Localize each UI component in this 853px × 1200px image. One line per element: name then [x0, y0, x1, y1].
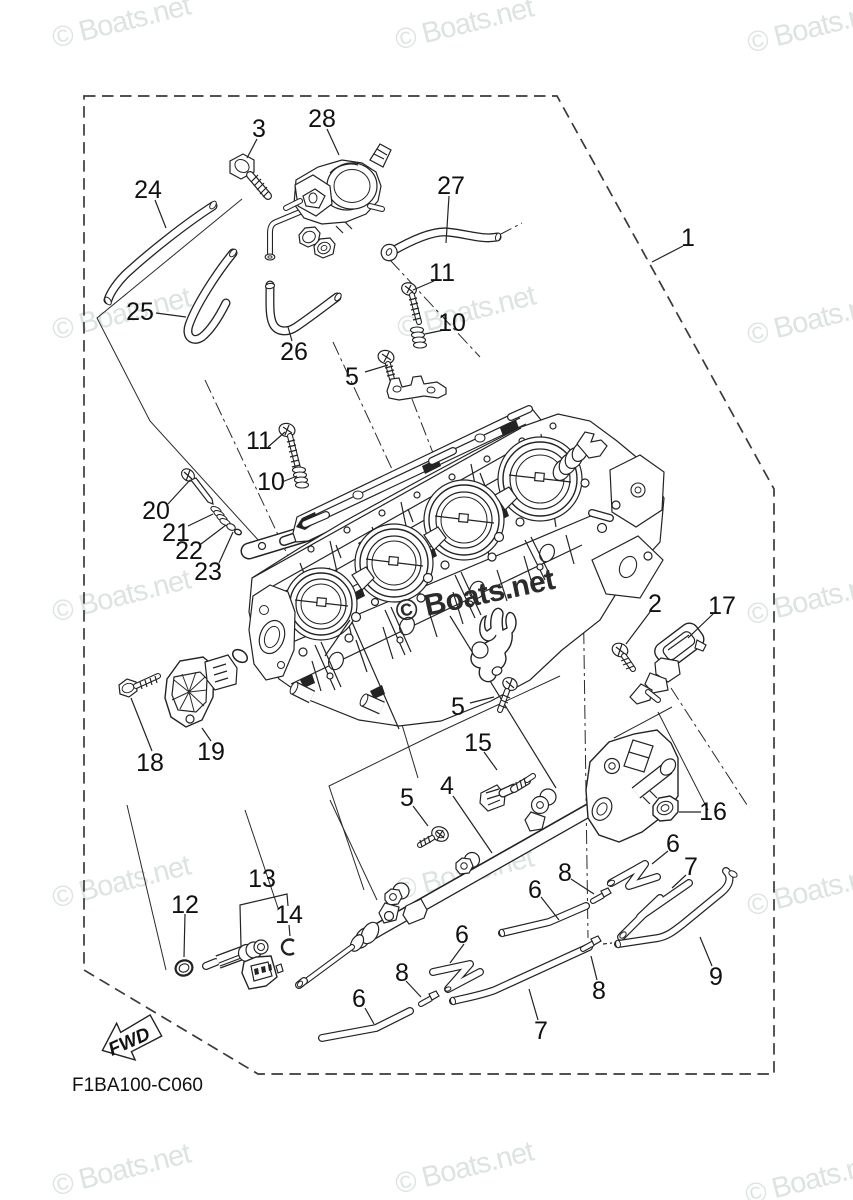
svg-text:5: 5 [345, 363, 359, 391]
svg-text:4: 4 [440, 772, 454, 800]
svg-text:7: 7 [684, 853, 698, 881]
svg-text:16: 16 [699, 798, 727, 826]
svg-text:27: 27 [437, 172, 465, 200]
svg-text:5: 5 [451, 693, 465, 721]
svg-text:23: 23 [194, 558, 222, 586]
svg-text:1: 1 [681, 224, 695, 252]
svg-text:19: 19 [197, 738, 225, 766]
svg-text:8: 8 [592, 977, 606, 1005]
svg-text:F1BA100-C060: F1BA100-C060 [72, 1075, 203, 1096]
svg-text:9: 9 [709, 963, 723, 991]
svg-text:6: 6 [528, 876, 542, 904]
svg-text:24: 24 [134, 176, 162, 204]
svg-text:14: 14 [275, 901, 303, 929]
svg-text:2: 2 [648, 590, 662, 618]
svg-text:25: 25 [126, 298, 154, 326]
svg-text:28: 28 [308, 105, 336, 133]
svg-text:8: 8 [395, 959, 409, 987]
svg-text:17: 17 [708, 592, 736, 620]
svg-text:15: 15 [464, 729, 492, 757]
svg-text:5: 5 [400, 784, 414, 812]
svg-text:7: 7 [534, 1017, 548, 1045]
svg-text:18: 18 [136, 749, 164, 777]
svg-text:12: 12 [171, 891, 199, 919]
svg-text:10: 10 [438, 309, 466, 337]
svg-text:26: 26 [280, 338, 308, 366]
svg-text:11: 11 [429, 259, 455, 287]
svg-text:8: 8 [558, 859, 572, 887]
svg-text:6: 6 [455, 921, 469, 949]
svg-text:6: 6 [666, 830, 680, 858]
svg-text:6: 6 [352, 985, 366, 1013]
svg-text:3: 3 [252, 115, 266, 143]
svg-text:11: 11 [246, 427, 272, 455]
svg-text:10: 10 [257, 468, 285, 496]
svg-text:13: 13 [248, 865, 276, 893]
